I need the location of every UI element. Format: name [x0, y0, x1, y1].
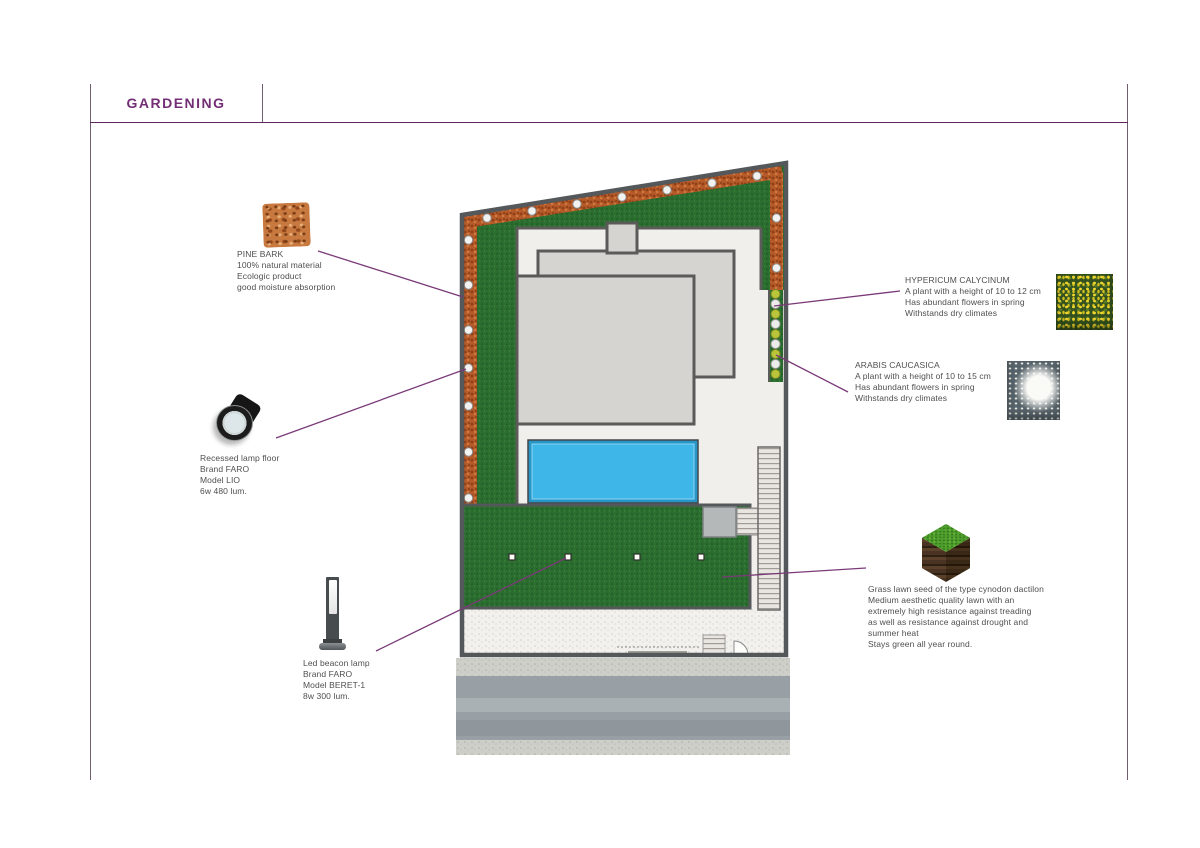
leader-line-recessed-lamp — [276, 369, 466, 438]
annotation-pine-bark: PINE BARK 100% natural material Ecologic… — [237, 249, 335, 293]
annotation-beacon-lamp: Led beacon lamp Brand FARO Model BERET-1… — [303, 658, 370, 702]
shrub-markers — [771, 290, 780, 379]
entrance-stairs — [703, 635, 725, 655]
annotation-hypericum: HYPERICUM CALYCINUM A plant with a heigh… — [905, 275, 1041, 319]
street — [456, 658, 790, 755]
hypericum-name: HYPERICUM CALYCINUM — [905, 275, 1041, 286]
beacon-lamp-image — [317, 576, 347, 650]
swimming-pool — [528, 440, 698, 503]
frame-right-line — [1127, 84, 1128, 780]
annotation-recessed-lamp: Recessed lamp floor Brand FARO Model LIO… — [200, 453, 279, 497]
leader-line-pine-bark — [318, 251, 463, 297]
grass-seed-image — [922, 524, 970, 582]
recessed-lamp-image — [213, 397, 259, 443]
small-stairs — [737, 508, 758, 535]
arabis-name: ARABIS CAUCASICA — [855, 360, 991, 371]
annotation-grass-lawn: Grass lawn seed of the type cynodon dact… — [868, 584, 1044, 650]
beacon-light — [329, 580, 337, 614]
frame-left-line — [90, 84, 91, 780]
pine-bark-image — [262, 202, 311, 248]
side-staircase — [758, 447, 780, 610]
annotation-arabis: ARABIS CAUCASICA A plant with a height o… — [855, 360, 991, 404]
building-chimney — [607, 223, 637, 253]
title-separator-line — [262, 84, 263, 122]
sidewalk-upper — [456, 658, 790, 676]
paved-platform — [703, 507, 736, 537]
title-block: GARDENING — [90, 84, 262, 122]
sidewalk-lower — [456, 740, 790, 755]
leader-line-hypericum — [774, 291, 900, 306]
sheet: GARDENING — [0, 0, 1200, 848]
header-rule — [90, 122, 1128, 123]
page-title: GARDENING — [126, 95, 225, 111]
pine-bark-name: PINE BARK — [237, 249, 335, 260]
site-plan — [456, 158, 790, 758]
hypericum-image — [1056, 274, 1113, 330]
beacon-base — [319, 643, 346, 650]
lamp-rim — [216, 405, 253, 441]
arabis-image — [1007, 361, 1060, 420]
